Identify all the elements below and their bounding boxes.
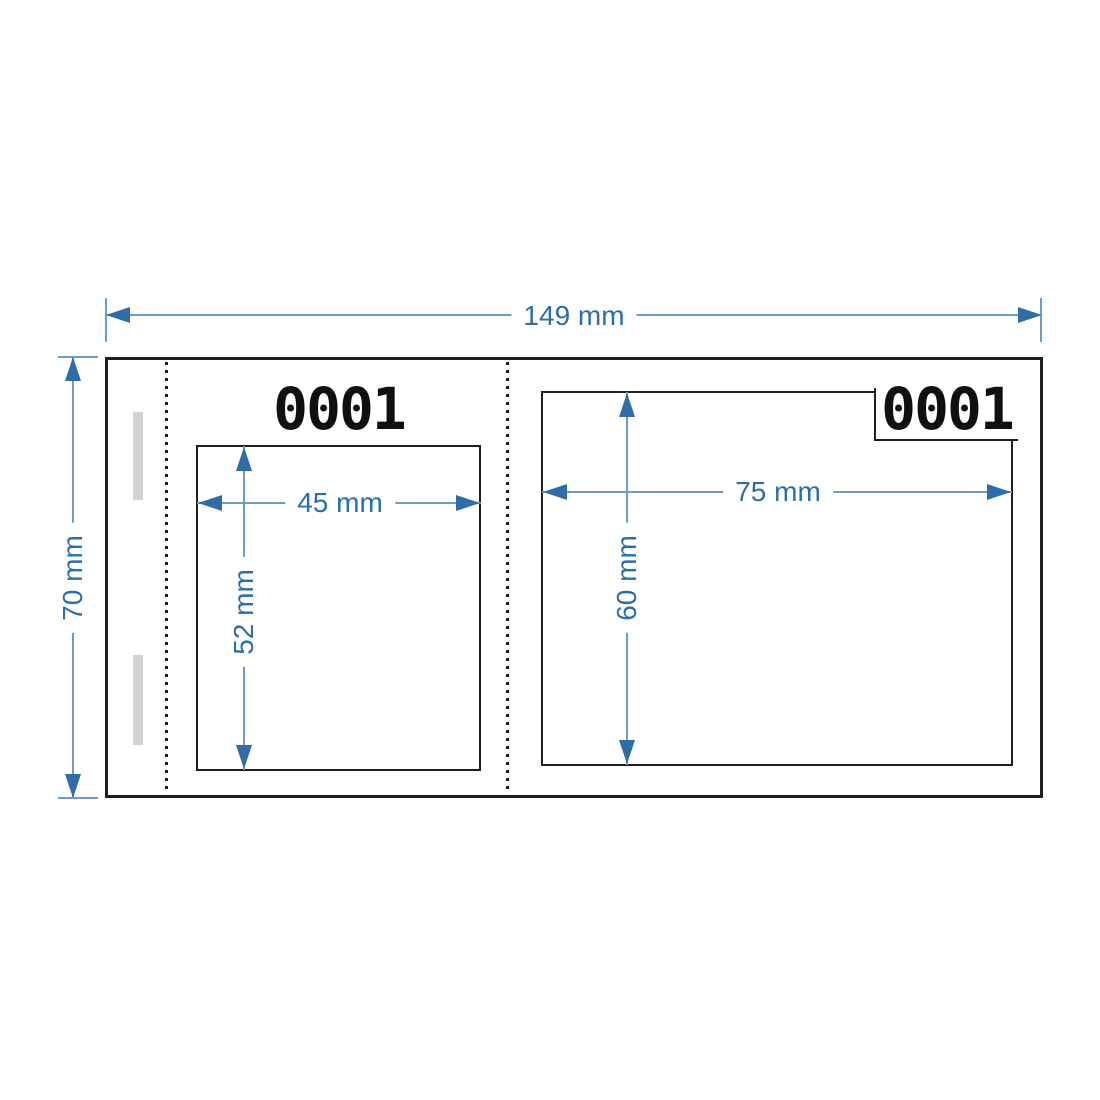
arrowhead-down-icon (236, 745, 252, 769)
arrowhead-left-icon (198, 495, 222, 511)
overall-height-label: 70 mm (55, 523, 91, 633)
binding-perforation-line (165, 362, 168, 793)
main-serial-number: 0001 (881, 375, 1013, 443)
glue-mark-top (133, 412, 143, 500)
main-width-label: 75 mm (723, 474, 833, 510)
glue-mark-bottom (133, 655, 143, 745)
arrowhead-up-icon (619, 393, 635, 417)
arrowhead-right-icon (1018, 307, 1042, 323)
stub-divider-perforation-line (506, 362, 509, 793)
arrowhead-right-icon (456, 495, 480, 511)
stub-width-label: 45 mm (285, 485, 395, 521)
main-height-label: 60 mm (609, 523, 645, 633)
arrowhead-down-icon (619, 740, 635, 764)
arrowhead-left-icon (543, 484, 567, 500)
overall-width-label: 149 mm (511, 298, 636, 334)
arrowhead-up-icon (65, 357, 81, 381)
stub-height-label: 52 mm (226, 557, 262, 667)
arrowhead-up-icon (236, 447, 252, 471)
arrowhead-down-icon (65, 774, 81, 798)
ticket-dimension-diagram: 149 mm 70 mm 0001 45 mm 52 mm 0001 (0, 0, 1100, 1100)
arrowhead-left-icon (106, 307, 130, 323)
arrowhead-right-icon (987, 484, 1011, 500)
stub-serial-number: 0001 (273, 375, 405, 443)
